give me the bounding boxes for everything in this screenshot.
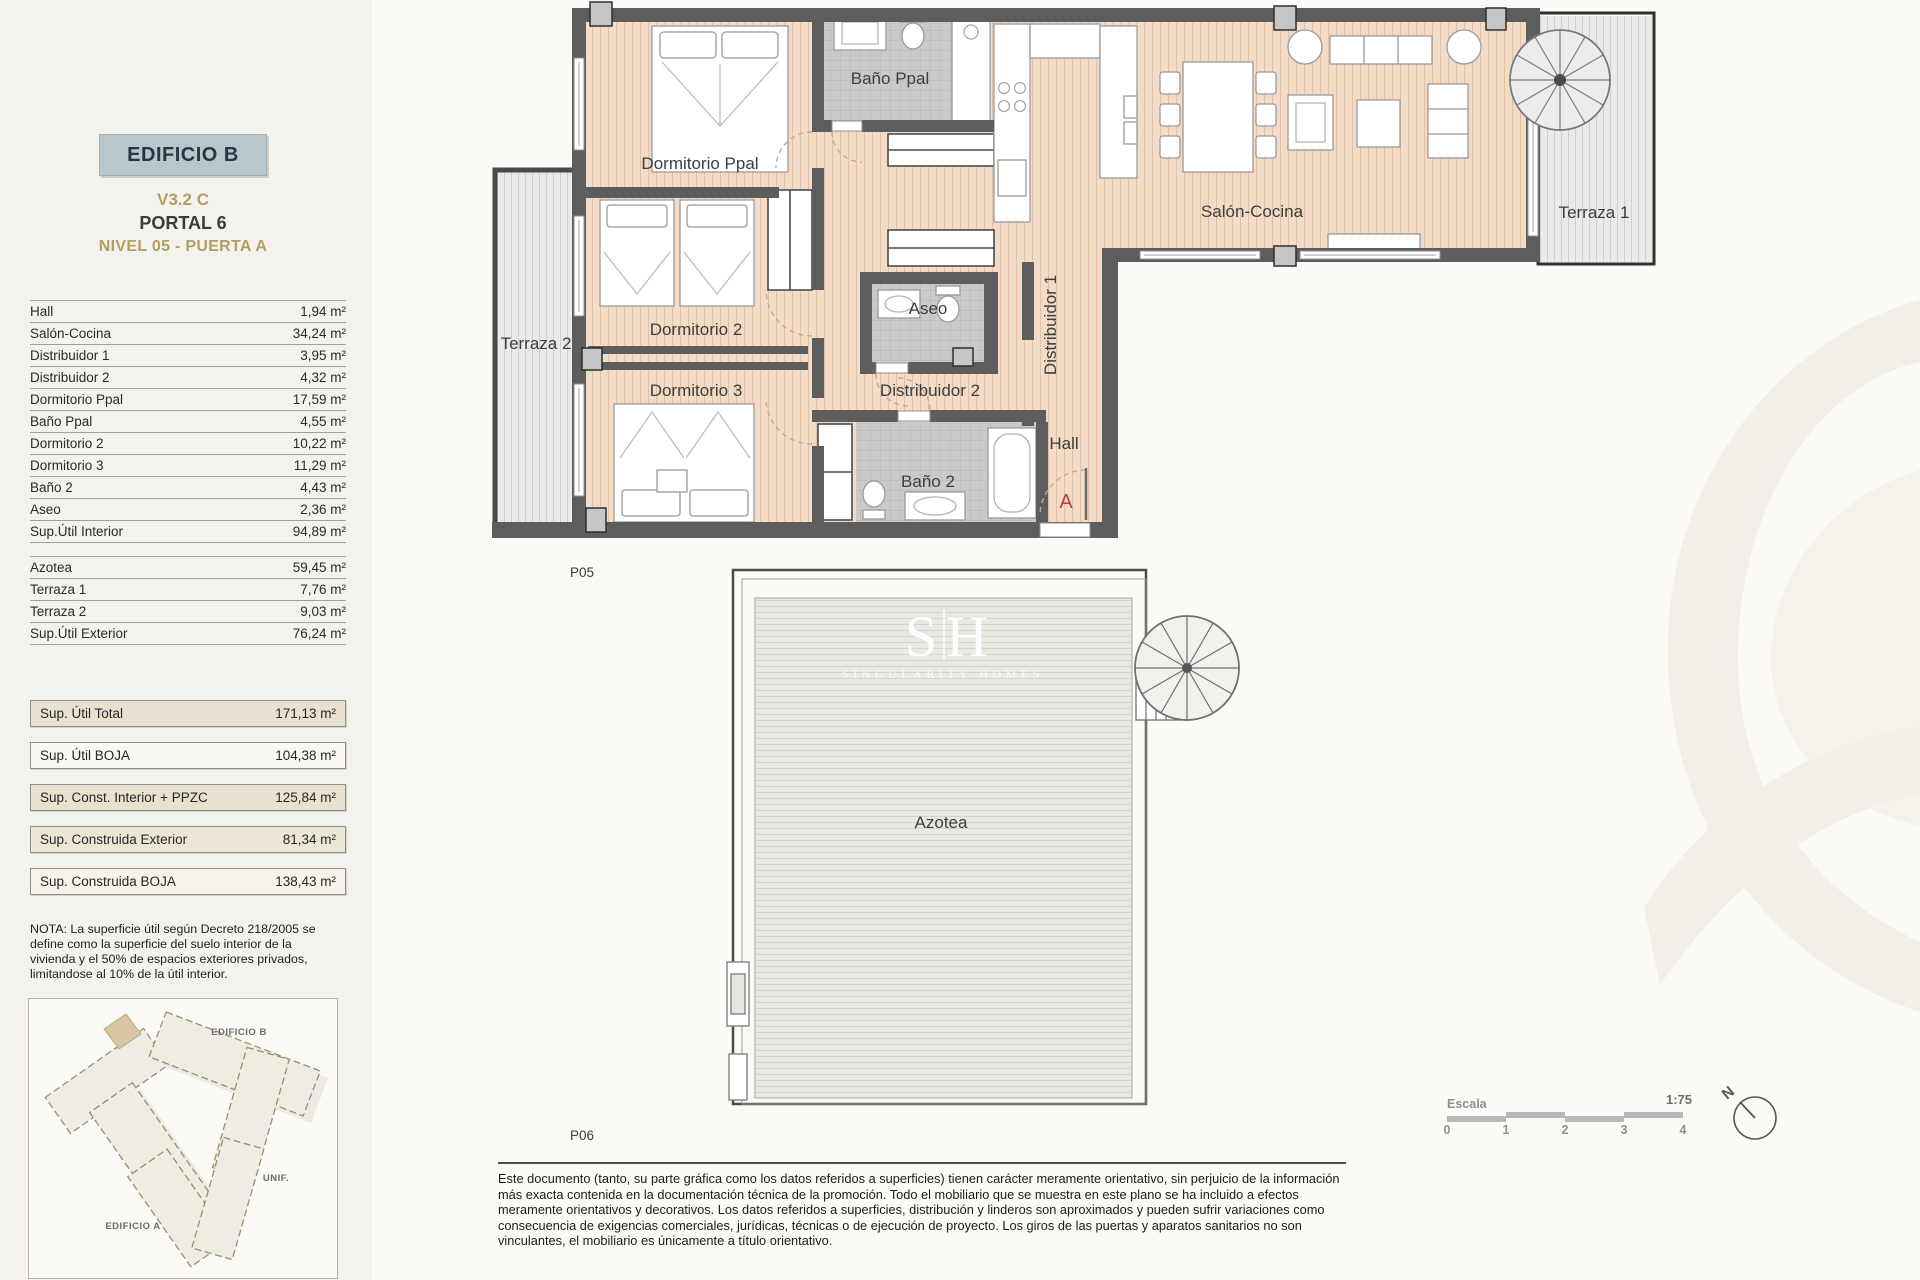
summary-label: Sup. Const. Interior + PPZC [40,790,208,805]
summary-value: 81,34 m² [283,832,336,847]
room-area: 94,89 m² [293,524,346,539]
decorative-swirl-watermark [1644,300,1920,1012]
scale-tick-1: 1 [1503,1123,1510,1137]
room-area: 34,24 m² [293,326,346,341]
roof-hatches [727,962,749,1100]
room-area: 10,22 m² [293,436,346,451]
scale-tick-4: 4 [1680,1123,1687,1137]
room-area: 3,95 m² [300,348,346,363]
portal-title: PORTAL 6 [40,213,326,234]
roof-plan: S H SINGULARITY HOMES Azotea P06 [570,570,1239,1143]
table-row: Sup.Útil Interior94,89 m² [30,520,346,542]
room-area: 4,32 m² [300,370,346,385]
table-row: Azotea59,45 m² [30,556,346,578]
room-area: 59,45 m² [293,560,346,575]
bed-dormitorio-3 [614,404,754,522]
roof-spiral-stair [1135,616,1239,720]
building-title: EDIFICIO B [99,134,267,176]
summary-value: 138,43 m² [275,874,336,889]
label-dormitorio-2: Dormitorio 2 [650,320,743,339]
table-row: Terraza 17,76 m² [30,578,346,600]
table-row: Aseo2,36 m² [30,498,346,520]
room-label: Azotea [30,560,72,575]
site-plan-key: EDIFICIO B UNIF. EDIFICIO A [28,998,338,1279]
table-row: Sup.Útil Exterior76,24 m² [30,622,346,644]
label-bano-2: Baño 2 [901,472,955,491]
label-azotea: Azotea [915,813,968,832]
room-area: 2,36 m² [300,502,346,517]
plan-header: EDIFICIO B V3.2 C PORTAL 6 NIVEL 05 - PU… [40,134,326,256]
table-row: Salón-Cocina34,24 m² [30,322,346,344]
room-area: 17,59 m² [293,392,346,407]
table-row: Dormitorio 210,22 m² [30,432,346,454]
scale-bar: Escala 1:75 0 1 2 3 4 [1444,1092,1692,1137]
room-area: 76,24 m² [293,626,346,641]
table-row: Distribuidor 13,95 m² [30,344,346,366]
label-hall: Hall [1049,434,1078,453]
site-plan-drawing: EDIFICIO B UNIF. EDIFICIO A [29,999,337,1278]
entrance-letter-a: A [1059,491,1073,513]
site-label-unif: UNIF. [263,1173,289,1184]
summary-util-boja: Sup. Útil BOJA104,38 m² [30,742,346,769]
scale-tick-0: 0 [1444,1123,1451,1137]
room-area: 9,03 m² [300,604,346,619]
wardrobe-corridor-2 [888,230,994,266]
summary-total-util: Sup. Útil Total171,13 m² [30,700,346,727]
label-bano-ppal: Baño Ppal [851,69,929,88]
watermark-initial-s: S [905,604,937,669]
label-terraza-2: Terraza 2 [501,334,572,353]
room-area: 1,94 m² [300,304,346,319]
summary-construida-boja: Sup. Construida BOJA138,43 m² [30,868,346,895]
room-label: Salón-Cocina [30,326,111,341]
table-row: Distribuidor 24,32 m² [30,366,346,388]
north-arrow: N [1719,1083,1776,1139]
table-row: Terraza 29,03 m² [30,600,346,622]
exterior-areas-table: Azotea59,45 m² Terraza 17,76 m² Terraza … [30,556,346,645]
interior-areas-table: Hall1,94 m² Salón-Cocina34,24 m² Distrib… [30,300,346,543]
scale-label: Escala [1447,1097,1488,1111]
summary-value: 104,38 m² [275,748,336,763]
scale-ratio: 1:75 [1666,1092,1692,1107]
watermark-initial-h: H [946,604,988,669]
table-row: Baño 24,43 m² [30,476,346,498]
room-label: Dormitorio 2 [30,436,104,451]
label-dormitorio-ppal: Dormitorio Ppal [641,154,758,173]
wardrobe-corridor-1 [888,134,994,166]
room-label: Baño Ppal [30,414,92,429]
label-terraza-1: Terraza 1 [1559,203,1630,222]
table-row: Hall1,94 m² [30,300,346,322]
bed-dormitorio-ppal [652,26,788,172]
room-label: Aseo [30,502,61,517]
room-label: Terraza 2 [30,604,86,619]
room-area: 11,29 m² [294,458,346,473]
room-label: Terraza 1 [30,582,86,597]
room-label: Dormitorio 3 [30,458,104,473]
unit-version: V3.2 C [40,190,326,210]
sheet-label-p05: P05 [570,565,594,580]
scale-tick-2: 2 [1562,1123,1569,1137]
site-label-edificio-b: EDIFICIO B [211,1027,267,1038]
level-title: NIVEL 05 - PUERTA A [40,238,326,256]
summary-value: 125,84 m² [275,790,336,805]
room-label: Distribuidor 1 [30,348,110,363]
table-row: Dormitorio Ppal17,59 m² [30,388,346,410]
table-row: Dormitorio 311,29 m² [30,454,346,476]
room-label: Hall [30,304,53,319]
nota-legal-text: NOTA: La superficie útil según Decreto 2… [30,922,334,982]
room-label: Sup.Útil Exterior [30,626,128,641]
summary-construida-exterior: Sup. Construida Exterior81,34 m² [30,826,346,853]
label-distribuidor-2: Distribuidor 2 [880,381,980,400]
terraza1-spiral-stair [1510,30,1610,130]
room-label: Sup.Útil Interior [30,524,123,539]
plan-sheet-page: Baño Ppal Dormitorio Ppal Dormitorio 2 D… [0,0,1920,1280]
label-salon-cocina: Salón-Cocina [1201,202,1304,221]
label-dormitorio-3: Dormitorio 3 [650,381,743,400]
watermark-name: SINGULARITY HOMES [842,667,1044,681]
main-floor-plan: Baño Ppal Dormitorio Ppal Dormitorio 2 D… [492,2,1654,580]
label-distribuidor-1: Distribuidor 1 [1041,275,1060,375]
sheet-label-p06: P06 [570,1128,594,1143]
wardrobe-dormitorio-2 [768,190,812,290]
room-label: Distribuidor 2 [30,370,110,385]
room-label: Dormitorio Ppal [30,392,123,407]
summary-label: Sup. Construida BOJA [40,874,176,889]
room-label: Baño 2 [30,480,73,495]
scale-tick-3: 3 [1621,1123,1628,1137]
summary-label: Sup. Útil BOJA [40,748,130,763]
summary-label: Sup. Construida Exterior [40,832,187,847]
site-label-edificio-a: EDIFICIO A [105,1221,160,1232]
north-letter: N [1719,1083,1738,1103]
room-area: 4,43 m² [300,480,346,495]
label-aseo: Aseo [909,299,948,318]
summary-const-interior: Sup. Const. Interior + PPZC125,84 m² [30,784,346,811]
room-area: 4,55 m² [300,414,346,429]
table-row: Baño Ppal4,55 m² [30,410,346,432]
legal-disclaimer: Este documento (tanto, su parte gráfica … [498,1162,1346,1249]
room-area: 7,76 m² [300,582,346,597]
summary-label: Sup. Útil Total [40,706,123,721]
summary-value: 171,13 m² [275,706,336,721]
